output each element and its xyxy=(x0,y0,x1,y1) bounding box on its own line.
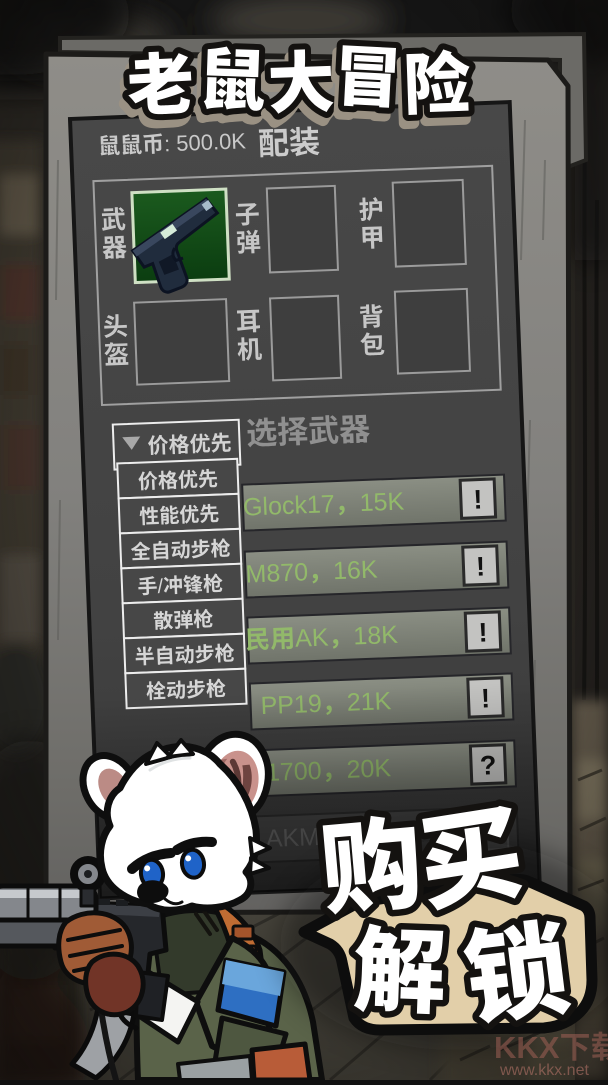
svg-text:16K: 16K xyxy=(333,556,379,586)
svg-text:AK: AK xyxy=(295,623,330,652)
svg-text:!: ! xyxy=(478,617,488,647)
svg-text:KKX: KKX xyxy=(494,1030,560,1065)
svg-text:18K: 18K xyxy=(353,621,399,651)
svg-text:!: ! xyxy=(475,551,485,581)
svg-text:Glock17: Glock17 xyxy=(243,490,336,522)
svg-text:www.kkx.net: www.kkx.net xyxy=(499,1062,589,1079)
svg-text:!: ! xyxy=(473,484,483,514)
svg-text:15K: 15K xyxy=(359,487,405,517)
svg-text:M870: M870 xyxy=(245,558,309,588)
svg-text:: 500.0K: : 500.0K xyxy=(164,128,247,156)
